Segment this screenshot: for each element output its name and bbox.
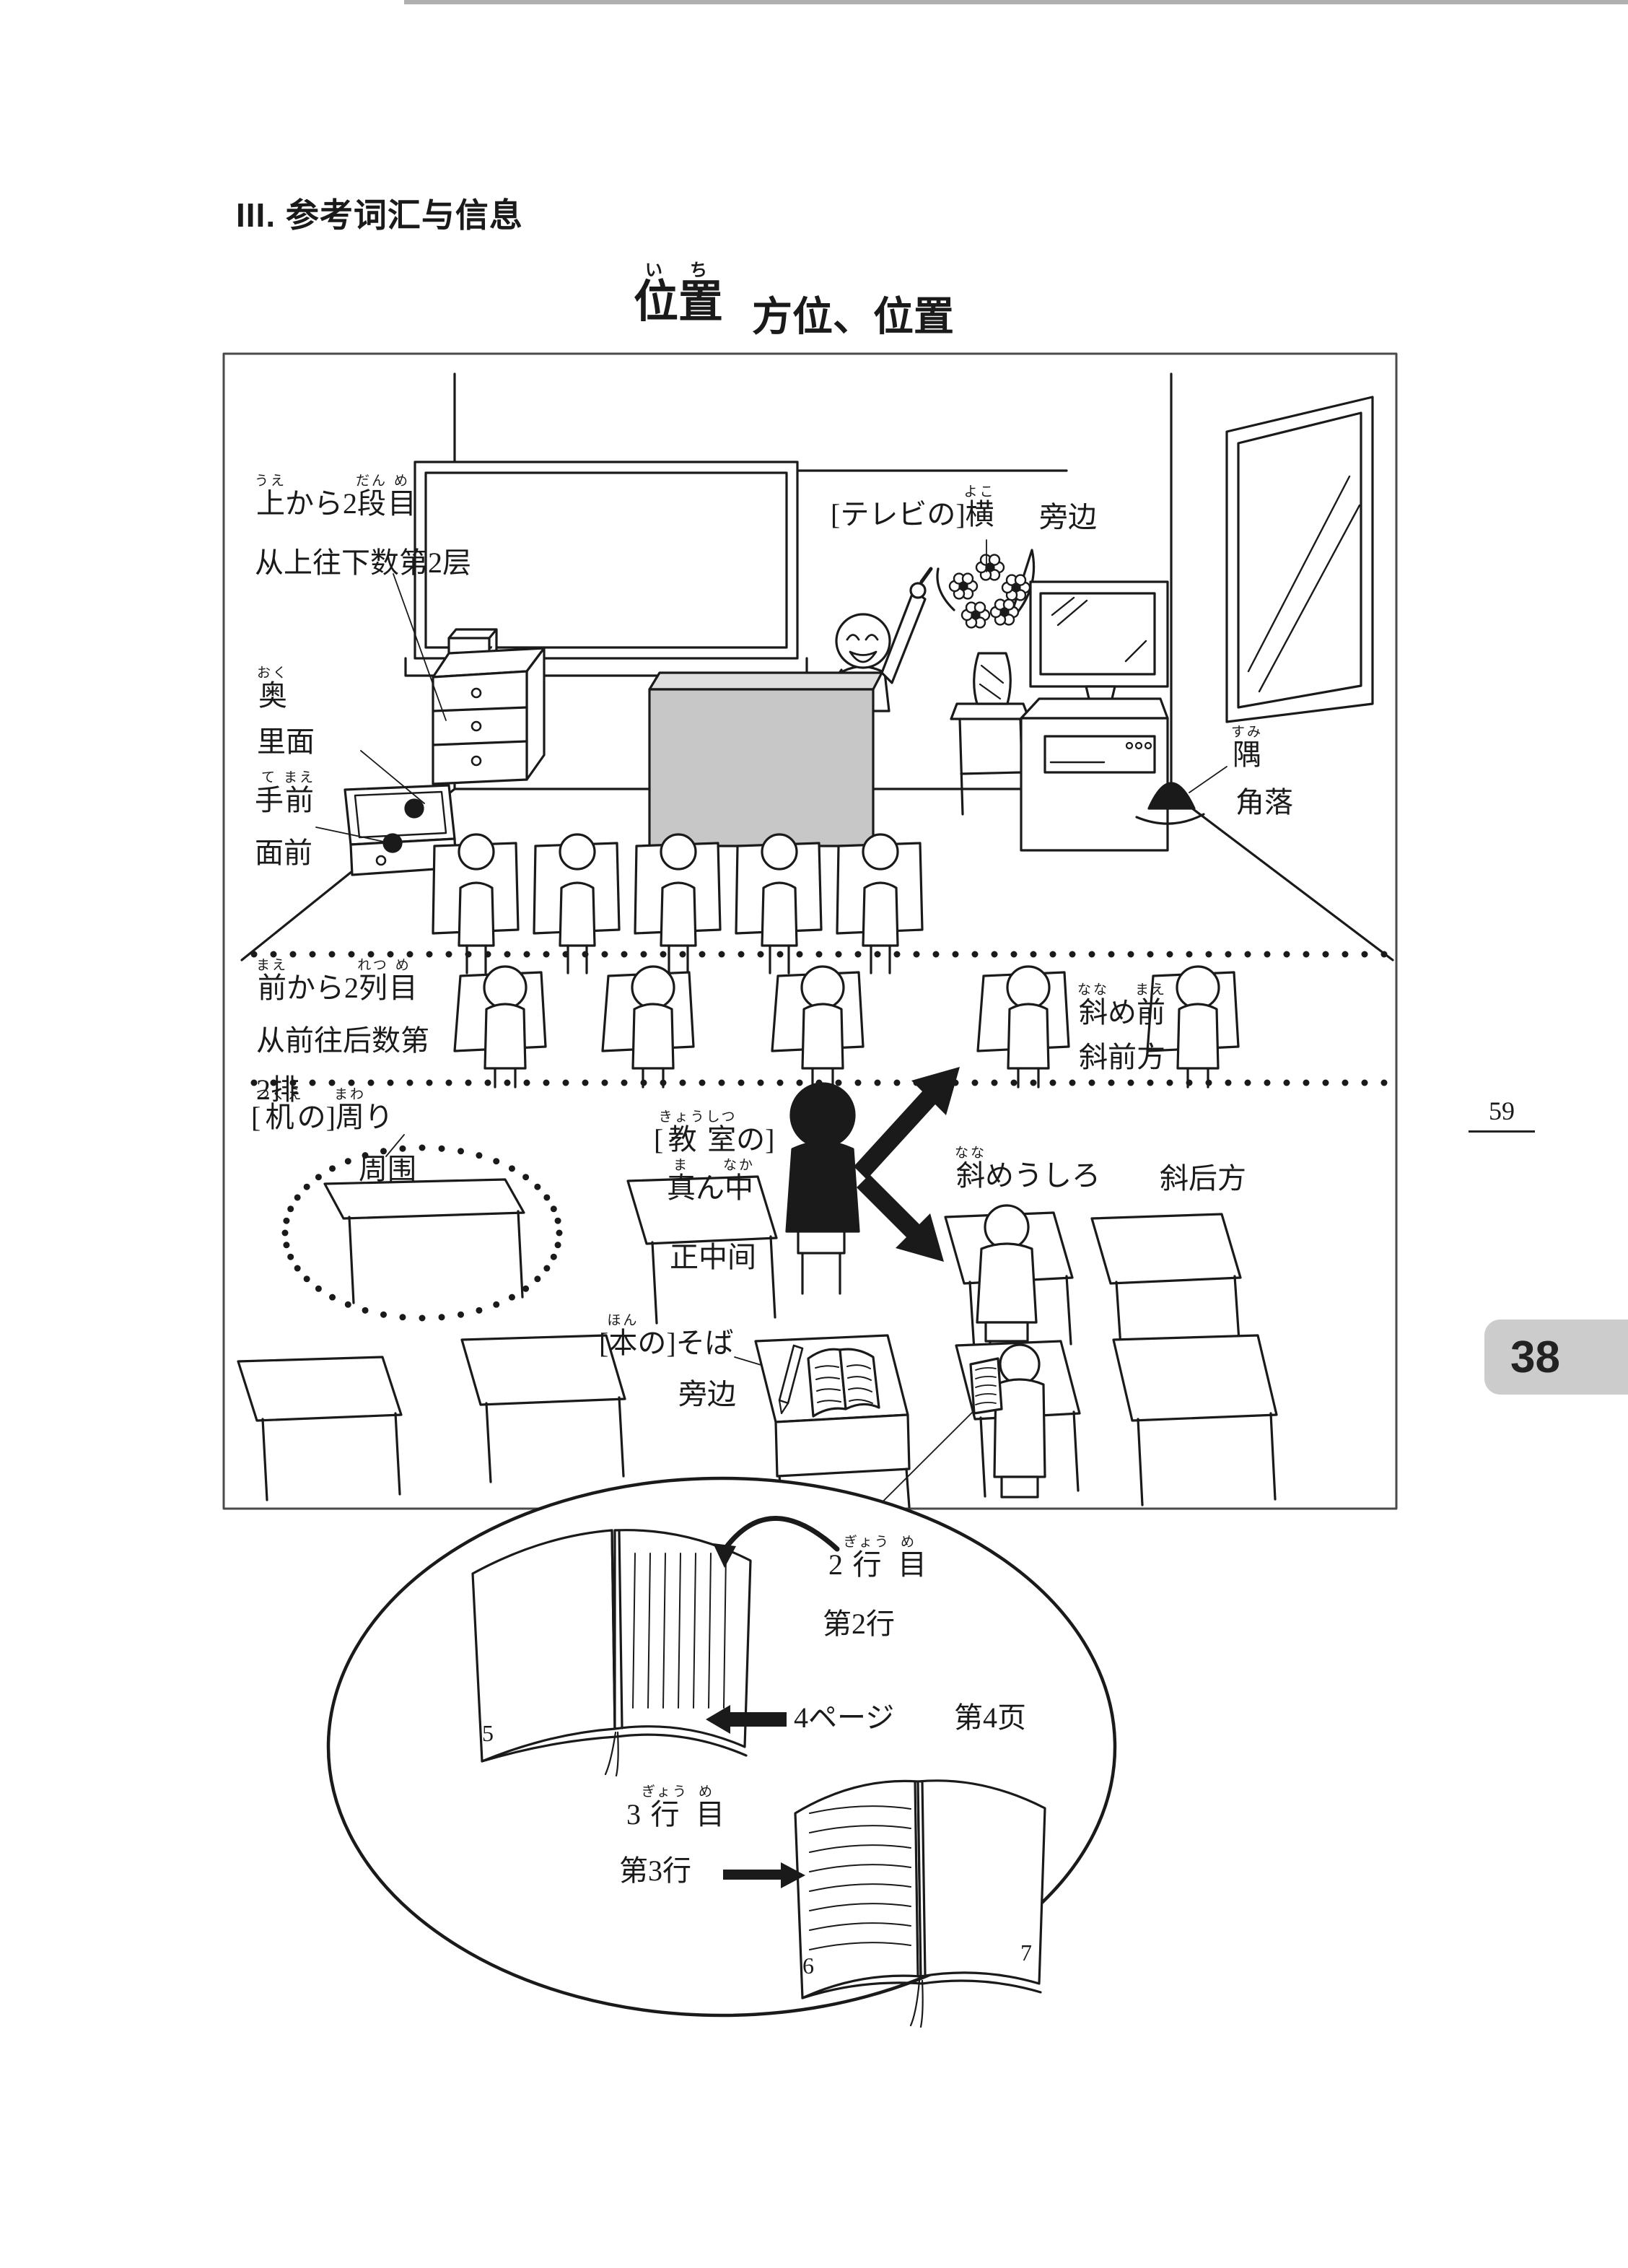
- drawer-knob: [472, 756, 481, 765]
- dotted-circle-desk: [522, 1174, 529, 1180]
- dotted-line-row2-back: [738, 1080, 745, 1086]
- dotted-line-row2-back: [1167, 1080, 1173, 1086]
- chapter-tab: 38: [1484, 1320, 1628, 1395]
- dotted-circle-desk: [493, 1301, 499, 1308]
- dotted-line-row2-front: [836, 951, 842, 958]
- dotted-circle-desk: [399, 1314, 406, 1320]
- dotted-line-row2-front: [1147, 951, 1154, 958]
- dotted-line-row2-back: [1147, 1080, 1154, 1086]
- student-body: [485, 1004, 525, 1068]
- dotted-line-row2-front: [816, 951, 823, 958]
- dotted-line-row2-front: [680, 951, 686, 958]
- dotted-line-row2-back: [1245, 1080, 1251, 1086]
- student-body: [977, 1244, 1036, 1322]
- dotted-line-row2-back: [719, 1080, 725, 1086]
- dotted-line-row2-front: [1284, 951, 1290, 958]
- dotted-line-row2-back: [1342, 1080, 1349, 1086]
- label-3gyome-jp: 3 行ぎょう 目め: [626, 1784, 725, 1829]
- label-4page-jp: 4ページ: [794, 1704, 894, 1732]
- dotted-circle-desk: [555, 1242, 561, 1248]
- student-body: [633, 1004, 673, 1068]
- dotted-line-row2-back: [1303, 1080, 1310, 1086]
- dotted-circle-desk: [551, 1205, 557, 1212]
- label-4page-cn: 第4页: [954, 1704, 1026, 1732]
- dotted-line-row2-back: [797, 1080, 803, 1086]
- dotted-line-row2-front: [349, 951, 355, 958]
- student-head: [632, 967, 674, 1008]
- desk-row4: [238, 1357, 401, 1421]
- label-kyoshitsu-jp1: [教きょう室しつの]: [654, 1109, 774, 1154]
- dotted-line-row2-back: [1381, 1080, 1388, 1086]
- dotted-line-row2-back: [992, 1080, 998, 1086]
- dotted-circle-desk: [439, 1146, 445, 1152]
- dotted-line-row2-front: [641, 951, 647, 958]
- dotted-line-row2-back: [1264, 1080, 1271, 1086]
- student-body: [661, 883, 696, 946]
- dotted-circle-desk: [294, 1194, 301, 1200]
- dotted-circle-desk: [315, 1286, 322, 1292]
- flower-center: [1001, 609, 1008, 616]
- dotted-line-row2-front: [1245, 951, 1251, 958]
- dotted-circle-desk: [282, 1230, 289, 1237]
- dotted-circle-desk: [287, 1205, 294, 1212]
- dotted-circle-desk: [304, 1275, 310, 1282]
- dotted-line-row2-front: [1342, 951, 1349, 958]
- label-naname-mae-jp: 斜ななめ前まえ: [1077, 982, 1167, 1027]
- student-head: [459, 834, 494, 869]
- dotted-circle-desk: [543, 1194, 550, 1200]
- dotted-line-row2-back: [972, 1080, 979, 1086]
- dotted-circle-desk: [362, 1307, 369, 1314]
- dotted-line-row2-front: [1323, 951, 1329, 958]
- tv: [1030, 582, 1168, 686]
- label-sumi-jp: 隅すみ: [1231, 725, 1263, 769]
- reference-student-head: [791, 1083, 854, 1147]
- page-number: 59: [1469, 1096, 1535, 1133]
- reference-student-chair: [798, 1231, 844, 1253]
- reading-student-body: [994, 1379, 1045, 1477]
- flower-table-top: [951, 704, 1029, 719]
- student-body: [1178, 1004, 1218, 1068]
- label-mae-2retsume-cn1: 从前往后数第: [256, 1026, 429, 1055]
- cabinet-top: [1021, 699, 1168, 718]
- dotted-circle-desk: [534, 1275, 541, 1282]
- podium-top: [649, 673, 882, 689]
- label-3gyome-cn: 第3行: [619, 1857, 691, 1885]
- dotted-line-row2-front: [388, 951, 394, 958]
- dotted-line-row2-back: [446, 1080, 452, 1086]
- teacher-hand: [911, 583, 925, 598]
- video-deck-button: [1126, 743, 1132, 749]
- dotted-circle-desk: [399, 1146, 406, 1152]
- student-head: [762, 834, 797, 869]
- dotted-line-row2-back: [1089, 1080, 1095, 1086]
- dotted-circle-desk: [555, 1218, 561, 1224]
- label-ue-kara-2danme-jp: 上うえから2段だん目め: [255, 474, 416, 518]
- dotted-line-row2-back: [465, 1080, 472, 1086]
- label-oku-jp: 奥おく: [257, 666, 289, 710]
- dotted-circle-desk: [283, 1242, 289, 1248]
- podium-front: [649, 689, 873, 846]
- dotted-line-row2-back: [485, 1080, 491, 1086]
- label-oku-cn: 里面: [257, 728, 315, 756]
- dotted-line-row2-front: [777, 951, 784, 958]
- dotted-line-row2-back: [504, 1080, 511, 1086]
- chest-side: [527, 648, 544, 780]
- student-body: [762, 883, 797, 946]
- reference-student-body: [787, 1142, 859, 1231]
- label-tsukue-mawari-jp: [机つくえの]周まわり: [251, 1087, 393, 1132]
- arrow-diagonal-front: [854, 1067, 960, 1179]
- dotted-circle-desk: [509, 1165, 515, 1172]
- desk-with-book-front: [776, 1415, 909, 1476]
- desk-row4-legs: [263, 1413, 400, 1500]
- chapter-tab-number: 38: [1510, 1332, 1560, 1383]
- dotted-circle-desk: [345, 1301, 351, 1308]
- chair: [986, 1322, 1028, 1341]
- dotted-circle-desk: [304, 1184, 310, 1190]
- dotted-line-row2-back: [1323, 1080, 1329, 1086]
- dotted-line-row2-back: [602, 1080, 608, 1086]
- label-kyoshitsu-cn: 正中间: [670, 1243, 756, 1272]
- dotted-circle-desk: [458, 1148, 464, 1154]
- dotted-line-row2-front: [953, 951, 959, 958]
- vase: [974, 653, 1011, 704]
- dotted-line-row2-back: [1030, 1080, 1037, 1086]
- dotted-line-row2-back: [368, 1080, 375, 1086]
- arrow-diagonal-behind: [857, 1174, 944, 1262]
- reading-student-head: [1000, 1345, 1039, 1384]
- ball-back: [406, 800, 423, 817]
- student-head: [863, 834, 898, 869]
- dotted-circle-desk: [476, 1152, 482, 1159]
- student-head: [661, 834, 696, 869]
- dotted-circle-desk: [329, 1294, 336, 1301]
- dotted-line-row2-front: [621, 951, 628, 958]
- dotted-line-row2-front: [992, 951, 998, 958]
- book1-left-page: [473, 1530, 615, 1761]
- dotted-line-row2-back: [1069, 1080, 1076, 1086]
- dotted-line-row2-back: [349, 1080, 355, 1086]
- student-head: [484, 967, 526, 1008]
- dotted-circle-desk: [329, 1165, 336, 1172]
- flower-center: [960, 583, 967, 590]
- dotted-circle-desk: [543, 1265, 550, 1272]
- dotted-line-row2-back: [894, 1080, 901, 1086]
- dotted-circle-desk: [315, 1174, 322, 1180]
- student-head: [1177, 967, 1219, 1008]
- student-body: [802, 1004, 843, 1068]
- label-temae-jp: 手て前まえ: [255, 770, 315, 815]
- ball-front: [384, 834, 401, 852]
- dotted-circle-desk: [534, 1184, 541, 1190]
- dotted-line-row2-front: [914, 951, 920, 958]
- dotted-line-row2-back: [621, 1080, 628, 1086]
- dotted-circle-desk: [439, 1314, 445, 1320]
- desk-circled-legs: [349, 1211, 522, 1303]
- dotted-line-row2-back: [1362, 1080, 1368, 1086]
- student-head: [560, 834, 595, 869]
- dotted-line-row2-back: [1128, 1080, 1134, 1086]
- chair: [1002, 1477, 1038, 1497]
- student-body: [459, 883, 494, 946]
- chair-legs: [669, 946, 688, 973]
- dotted-line-row2-back: [855, 1080, 862, 1086]
- dotted-line-row2-back: [777, 1080, 784, 1086]
- dotted-line-row2-front: [1381, 951, 1388, 958]
- dotted-line-row2-front: [855, 951, 862, 958]
- textbook-page: III. 参考词汇与信息 位い置ち 方位、位置 5467 上うえから2段だん目め…: [0, 0, 1628, 2268]
- dotted-line-row2-back: [1050, 1080, 1056, 1086]
- dotted-line-row2-back: [543, 1080, 550, 1086]
- label-naname-mae-cn: 斜前方: [1079, 1043, 1165, 1072]
- dotted-line-row2-front: [271, 951, 277, 958]
- video-deck-button: [1136, 743, 1142, 749]
- dotted-circle-desk: [419, 1145, 426, 1151]
- dotted-line-row2-front: [699, 951, 706, 958]
- student-body: [1008, 1004, 1049, 1068]
- dotted-line-row2-front: [1108, 951, 1115, 958]
- dotted-line-row2-back: [1284, 1080, 1290, 1086]
- dotted-line-row2-front: [1362, 951, 1368, 958]
- book2-page-number-left: 6: [802, 1953, 814, 1979]
- dotted-line-row2-back: [680, 1080, 686, 1086]
- dotted-line-row2-back: [1108, 1080, 1115, 1086]
- dotted-line-row2-front: [446, 951, 452, 958]
- book1-page-number-left: 5: [482, 1720, 494, 1746]
- dotted-line-row2-front: [1225, 951, 1232, 958]
- classroom-illustration: 5467: [0, 0, 1628, 2268]
- flower-center: [1012, 584, 1020, 591]
- dotted-line-row2-front: [719, 951, 725, 958]
- book2-left-page: [795, 1781, 921, 1998]
- open-drawer-knob: [377, 856, 385, 865]
- video-deck-button: [1145, 743, 1151, 749]
- chair-legs: [467, 946, 486, 973]
- dotted-line-row2-front: [738, 951, 745, 958]
- label-ue-kara-2danme-cn: 从上往下数第2层: [255, 549, 471, 577]
- dotted-line-row2-back: [875, 1080, 881, 1086]
- chair-legs: [568, 946, 587, 973]
- dotted-line-row2-front: [504, 951, 511, 958]
- dotted-line-row2-front: [1128, 951, 1134, 958]
- dotted-line-row2-front: [1264, 951, 1271, 958]
- dotted-line-row2-front: [1167, 951, 1173, 958]
- dotted-line-row2-front: [1303, 951, 1310, 958]
- dotted-line-row2-front: [368, 951, 375, 958]
- dotted-circle-desk: [493, 1158, 499, 1164]
- dotted-line-row2-front: [875, 951, 881, 958]
- dotted-line-row2-back: [310, 1080, 316, 1086]
- flower-center: [972, 611, 979, 619]
- desk-row4: [1113, 1335, 1277, 1421]
- dotted-line-row2-front: [310, 951, 316, 958]
- window: [1227, 397, 1373, 722]
- desk-row4-legs: [1138, 1413, 1275, 1505]
- dotted-circle-desk: [287, 1254, 294, 1260]
- chalk: [922, 569, 931, 582]
- dotted-line-row2-front: [933, 951, 940, 958]
- student-head: [1007, 967, 1049, 1008]
- dotted-line-row2-back: [582, 1080, 589, 1086]
- dotted-line-row2-front: [407, 951, 413, 958]
- dotted-line-row2-back: [407, 1080, 413, 1086]
- label-sumi-cn: 角落: [1235, 788, 1293, 817]
- flower-table-legs: [960, 719, 1023, 814]
- dotted-line-row2-front: [1089, 951, 1095, 958]
- dotted-circle-desk: [419, 1315, 426, 1322]
- dotted-line-row2-front: [543, 951, 550, 958]
- dotted-circle-desk: [522, 1286, 529, 1292]
- dotted-line-row2-front: [426, 951, 433, 958]
- label-2gyome-cn: 第2行: [823, 1610, 895, 1639]
- student-body: [560, 883, 595, 946]
- cabinet-front: [1021, 718, 1168, 850]
- flower-center: [986, 564, 994, 571]
- book2-tassel: [911, 1981, 923, 2027]
- label-temae-cn: 面前: [255, 839, 312, 868]
- dotted-line-row2-back: [329, 1080, 336, 1086]
- dotted-line-row2-front: [1186, 951, 1193, 958]
- dotted-line-row2-back: [1225, 1080, 1232, 1086]
- dotted-circle-desk: [509, 1294, 515, 1301]
- desk-row3: [1092, 1214, 1240, 1283]
- label-tv-yoko-jp: [テレビの]横よこ: [831, 484, 996, 529]
- student-head: [985, 1205, 1028, 1249]
- dotted-circle-desk: [345, 1158, 351, 1164]
- dotted-line-row2-back: [524, 1080, 530, 1086]
- label-kyoshitsu-jp2: 真まん中なか: [667, 1158, 755, 1203]
- dotted-line-row2-back: [758, 1080, 764, 1086]
- dotted-line-row2-front: [797, 951, 803, 958]
- dotted-line-row2-front: [1050, 951, 1056, 958]
- dotted-circle-desk: [283, 1218, 289, 1224]
- dotted-line-row2-front: [290, 951, 297, 958]
- student-head: [802, 967, 844, 1008]
- dotted-line-row2-back: [1011, 1080, 1017, 1086]
- leader-sumi: [1189, 767, 1227, 793]
- label-2gyome-jp: 2 行ぎょう 目め: [828, 1535, 927, 1579]
- dotted-line-row2-back: [426, 1080, 433, 1086]
- desk-row4-legs: [486, 1397, 623, 1482]
- drawer-knob: [472, 722, 481, 730]
- dotted-line-row2-front: [329, 951, 336, 958]
- chair-legs: [770, 946, 789, 973]
- chair-legs: [802, 1253, 840, 1294]
- label-hon-soba-cn: 旁边: [678, 1380, 736, 1409]
- student-body: [863, 883, 898, 946]
- dotted-circle-desk: [476, 1307, 482, 1314]
- label-naname-ushiro-cn: 斜后方: [1160, 1164, 1246, 1193]
- dotted-circle-desk: [294, 1265, 301, 1272]
- chair-legs: [871, 946, 890, 973]
- desk-circled: [325, 1179, 524, 1218]
- label-mae-2retsume-jp: 前まえから2列れつ目め: [256, 958, 418, 1003]
- dotted-circle-desk: [556, 1230, 563, 1237]
- dotted-line-row2-front: [894, 951, 901, 958]
- dotted-line-row2-front: [251, 951, 258, 958]
- label-tv-yoko-cn: 旁边: [1039, 503, 1097, 532]
- dotted-line-row2-back: [699, 1080, 706, 1086]
- book2-page-number-right: 7: [1020, 1940, 1032, 1966]
- dotted-line-row2-back: [836, 1080, 842, 1086]
- dotted-line-row2-front: [972, 951, 979, 958]
- dotted-line-row2-front: [602, 951, 608, 958]
- dotted-line-row2-front: [660, 951, 667, 958]
- dotted-line-row2-front: [524, 951, 530, 958]
- dotted-circle-desk: [458, 1312, 464, 1318]
- dotted-line-row2-back: [388, 1080, 394, 1086]
- dotted-line-row2-back: [563, 1080, 569, 1086]
- label-tsukue-mawari-cn: 周围: [359, 1155, 416, 1184]
- dotted-line-row2-front: [1011, 951, 1017, 958]
- dotted-circle-desk: [380, 1312, 387, 1318]
- label-hon-soba-jp: [本ほんの]そば: [599, 1313, 734, 1358]
- dotted-line-row2-front: [758, 951, 764, 958]
- dotted-line-row2-front: [1030, 951, 1037, 958]
- dotted-line-row2-front: [1206, 951, 1212, 958]
- drawer-knob: [472, 689, 481, 697]
- dotted-line-row2-front: [1069, 951, 1076, 958]
- dotted-circle-desk: [551, 1254, 557, 1260]
- label-naname-ushiro-jp: 斜ななめうしろ: [955, 1146, 1100, 1190]
